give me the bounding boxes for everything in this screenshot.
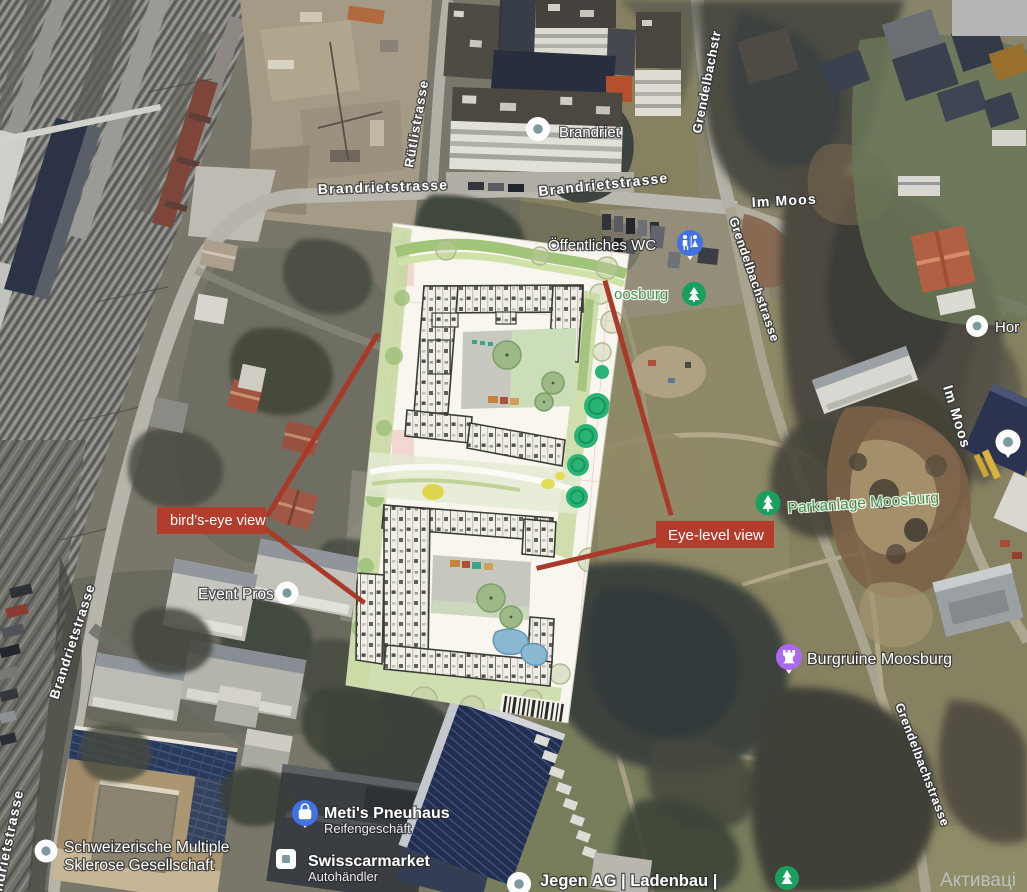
svg-text:Öffentliches WC: Öffentliches WC (548, 236, 656, 254)
svg-text:Event Pros: Event Pros (198, 586, 274, 603)
svg-text:bird’s-eye view: bird’s-eye view (170, 513, 266, 529)
svg-text:Burgruine Moosburg: Burgruine Moosburg (807, 651, 952, 668)
svg-text:Активаці: Активаці (940, 870, 1016, 891)
svg-text:Meti's Pneuhaus: Meti's Pneuhaus (324, 805, 450, 822)
svg-text:Reifengeschäft: Reifengeschäft (324, 821, 411, 836)
svg-text:Swisscarmarket: Swisscarmarket (308, 853, 431, 870)
svg-text:Brandriet: Brandriet (559, 124, 621, 141)
svg-text:Autohändler: Autohändler (308, 869, 379, 884)
svg-text:oosburg: oosburg (614, 286, 668, 303)
svg-text:Schweizerische Multiple: Schweizerische Multiple (64, 839, 229, 856)
svg-text:Im Moos: Im Moos (751, 191, 817, 210)
svg-text:Jegen AG | Ladenbau |: Jegen AG | Ladenbau | (540, 872, 717, 890)
svg-text:Sklerose Gesellschaft: Sklerose Gesellschaft (64, 857, 215, 874)
svg-text:Hor: Hor (995, 319, 1019, 336)
svg-text:Eye-level view: Eye-level view (668, 527, 764, 544)
